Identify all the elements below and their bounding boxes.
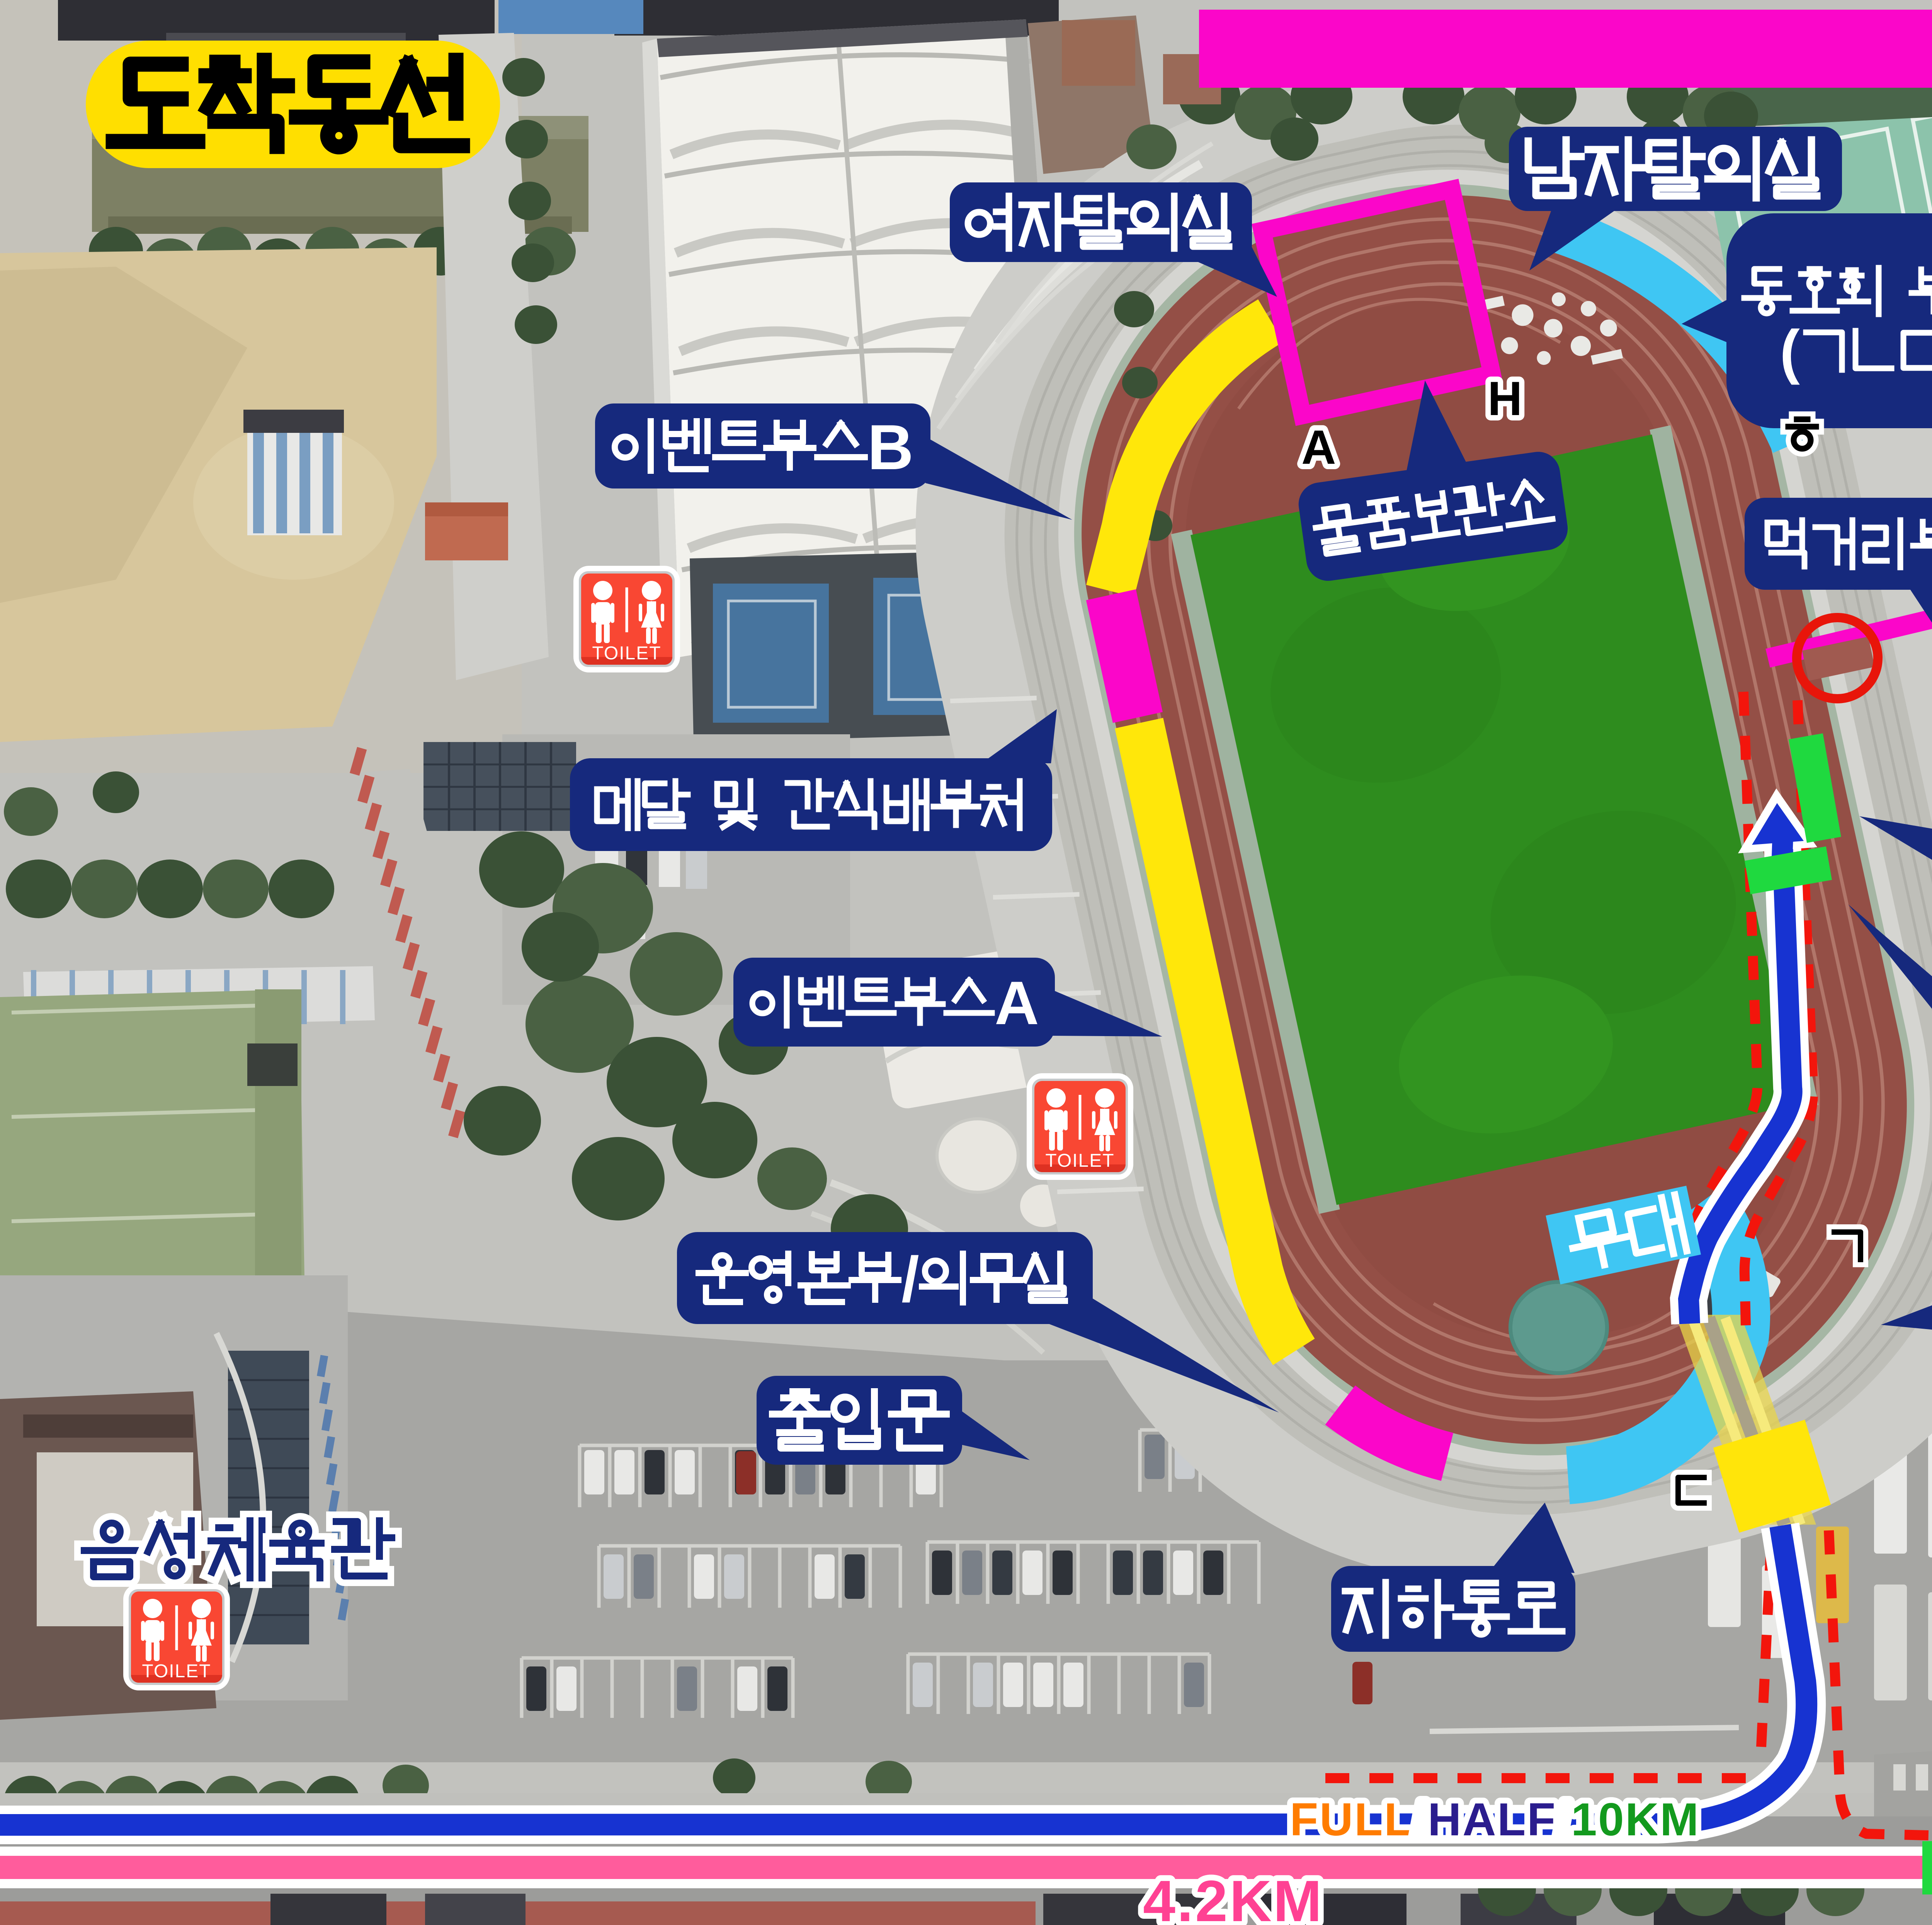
svg-text:K: K (1625, 1794, 1659, 1845)
svg-text:L: L (1497, 1794, 1526, 1845)
svg-text:M: M (1273, 1868, 1322, 1925)
svg-text:4: 4 (1143, 1868, 1175, 1925)
svg-text:L: L (1354, 1794, 1383, 1845)
svg-text:A: A (1463, 1794, 1496, 1845)
svg-text:/: / (1413, 1794, 1426, 1845)
svg-text:.: . (1177, 1868, 1193, 1925)
svg-text:K: K (1230, 1868, 1272, 1925)
svg-text:2: 2 (1195, 1868, 1228, 1925)
svg-text:(: ( (1780, 318, 1800, 385)
svg-text:B: B (867, 412, 913, 483)
svg-text:0: 0 (1598, 1794, 1624, 1845)
svg-text:M: M (1660, 1794, 1699, 1845)
svg-text:1: 1 (1571, 1794, 1597, 1845)
svg-text:U: U (1320, 1794, 1353, 1845)
svg-text:L: L (1384, 1794, 1412, 1845)
svg-text:F: F (1290, 1794, 1318, 1845)
svg-text:A: A (995, 968, 1039, 1037)
svg-text:F: F (1527, 1794, 1555, 1845)
svg-text:H: H (1488, 372, 1522, 426)
svg-text:A: A (1301, 421, 1336, 474)
svg-text:/: / (901, 1244, 919, 1315)
svg-text:/: / (1557, 1794, 1570, 1845)
svg-text:H: H (1428, 1794, 1461, 1845)
